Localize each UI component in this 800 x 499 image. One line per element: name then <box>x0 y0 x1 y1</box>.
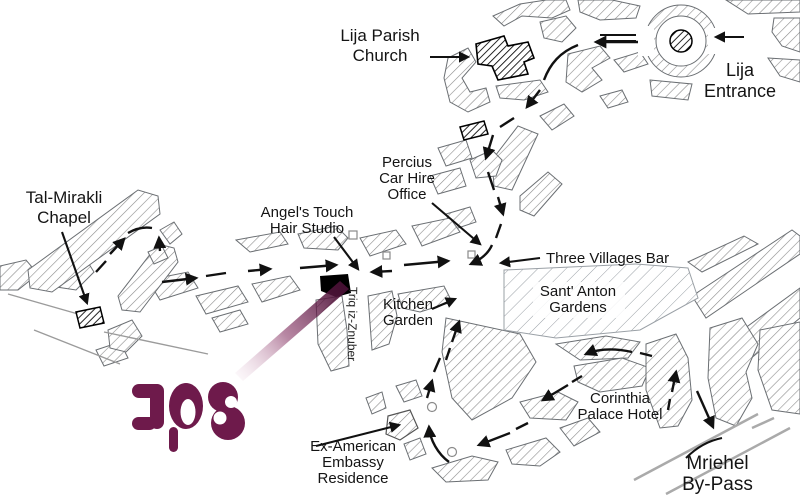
label-triq-iz-znuber: Triq iz-Znuber <box>346 287 359 361</box>
label-ex-american-embassy-residence: Ex-AmericanEmbassyResidence <box>298 439 408 487</box>
label-percius-car-hire-office: PerciusCar HireOffice <box>372 155 442 203</box>
embassy-building <box>386 410 418 440</box>
label-angels-touch-hair-studio: Angel's TouchHair Studio <box>247 205 367 237</box>
label-sant-anton-gardens: Sant' AntonGardens <box>528 284 628 316</box>
studio-pointer-arrow <box>334 237 358 269</box>
jos-logo <box>128 374 254 456</box>
label-mriehel-by-pass: MriehelBy-Pass <box>660 453 775 495</box>
label-lija-entrance: LijaEntrance <box>685 60 795 102</box>
label-kitchen-garden: KitchenGarden <box>376 297 440 329</box>
map-page: Lija ParishChurch LijaEntrance Tal-Mirak… <box>0 0 800 499</box>
chapel-building <box>76 307 104 328</box>
road-divider-lines <box>600 35 636 41</box>
church-building <box>476 36 534 80</box>
map-canvas <box>0 0 800 499</box>
label-corinthia-palace-hotel: CorinthiaPalace Hotel <box>565 391 675 423</box>
bar-pointer-arrow <box>501 258 540 263</box>
roundabout-island <box>670 30 692 52</box>
label-three-villages-bar: Three Villages Bar <box>546 251 669 267</box>
car-hire-building <box>460 121 488 140</box>
label-lija-parish-church: Lija ParishChurch <box>325 26 435 66</box>
label-tal-mirakli-chapel: Tal-MirakliChapel <box>8 188 120 228</box>
